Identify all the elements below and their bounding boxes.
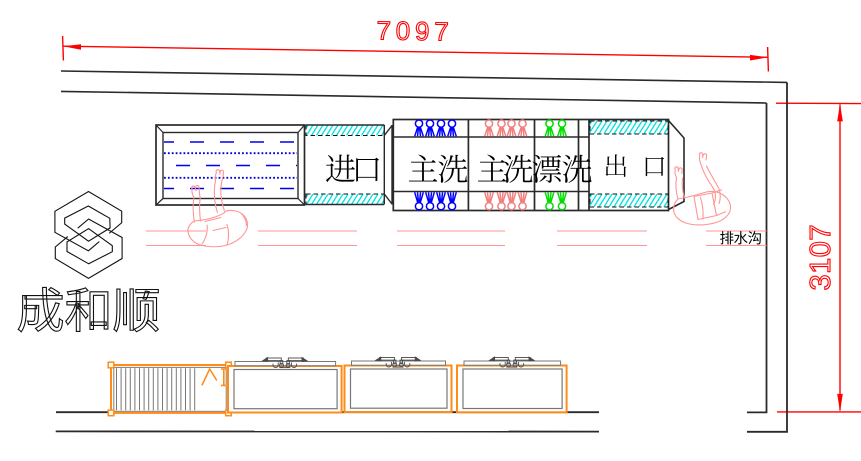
svg-text:3107: 3107 <box>805 224 837 291</box>
svg-text:7097: 7097 <box>376 15 454 46</box>
